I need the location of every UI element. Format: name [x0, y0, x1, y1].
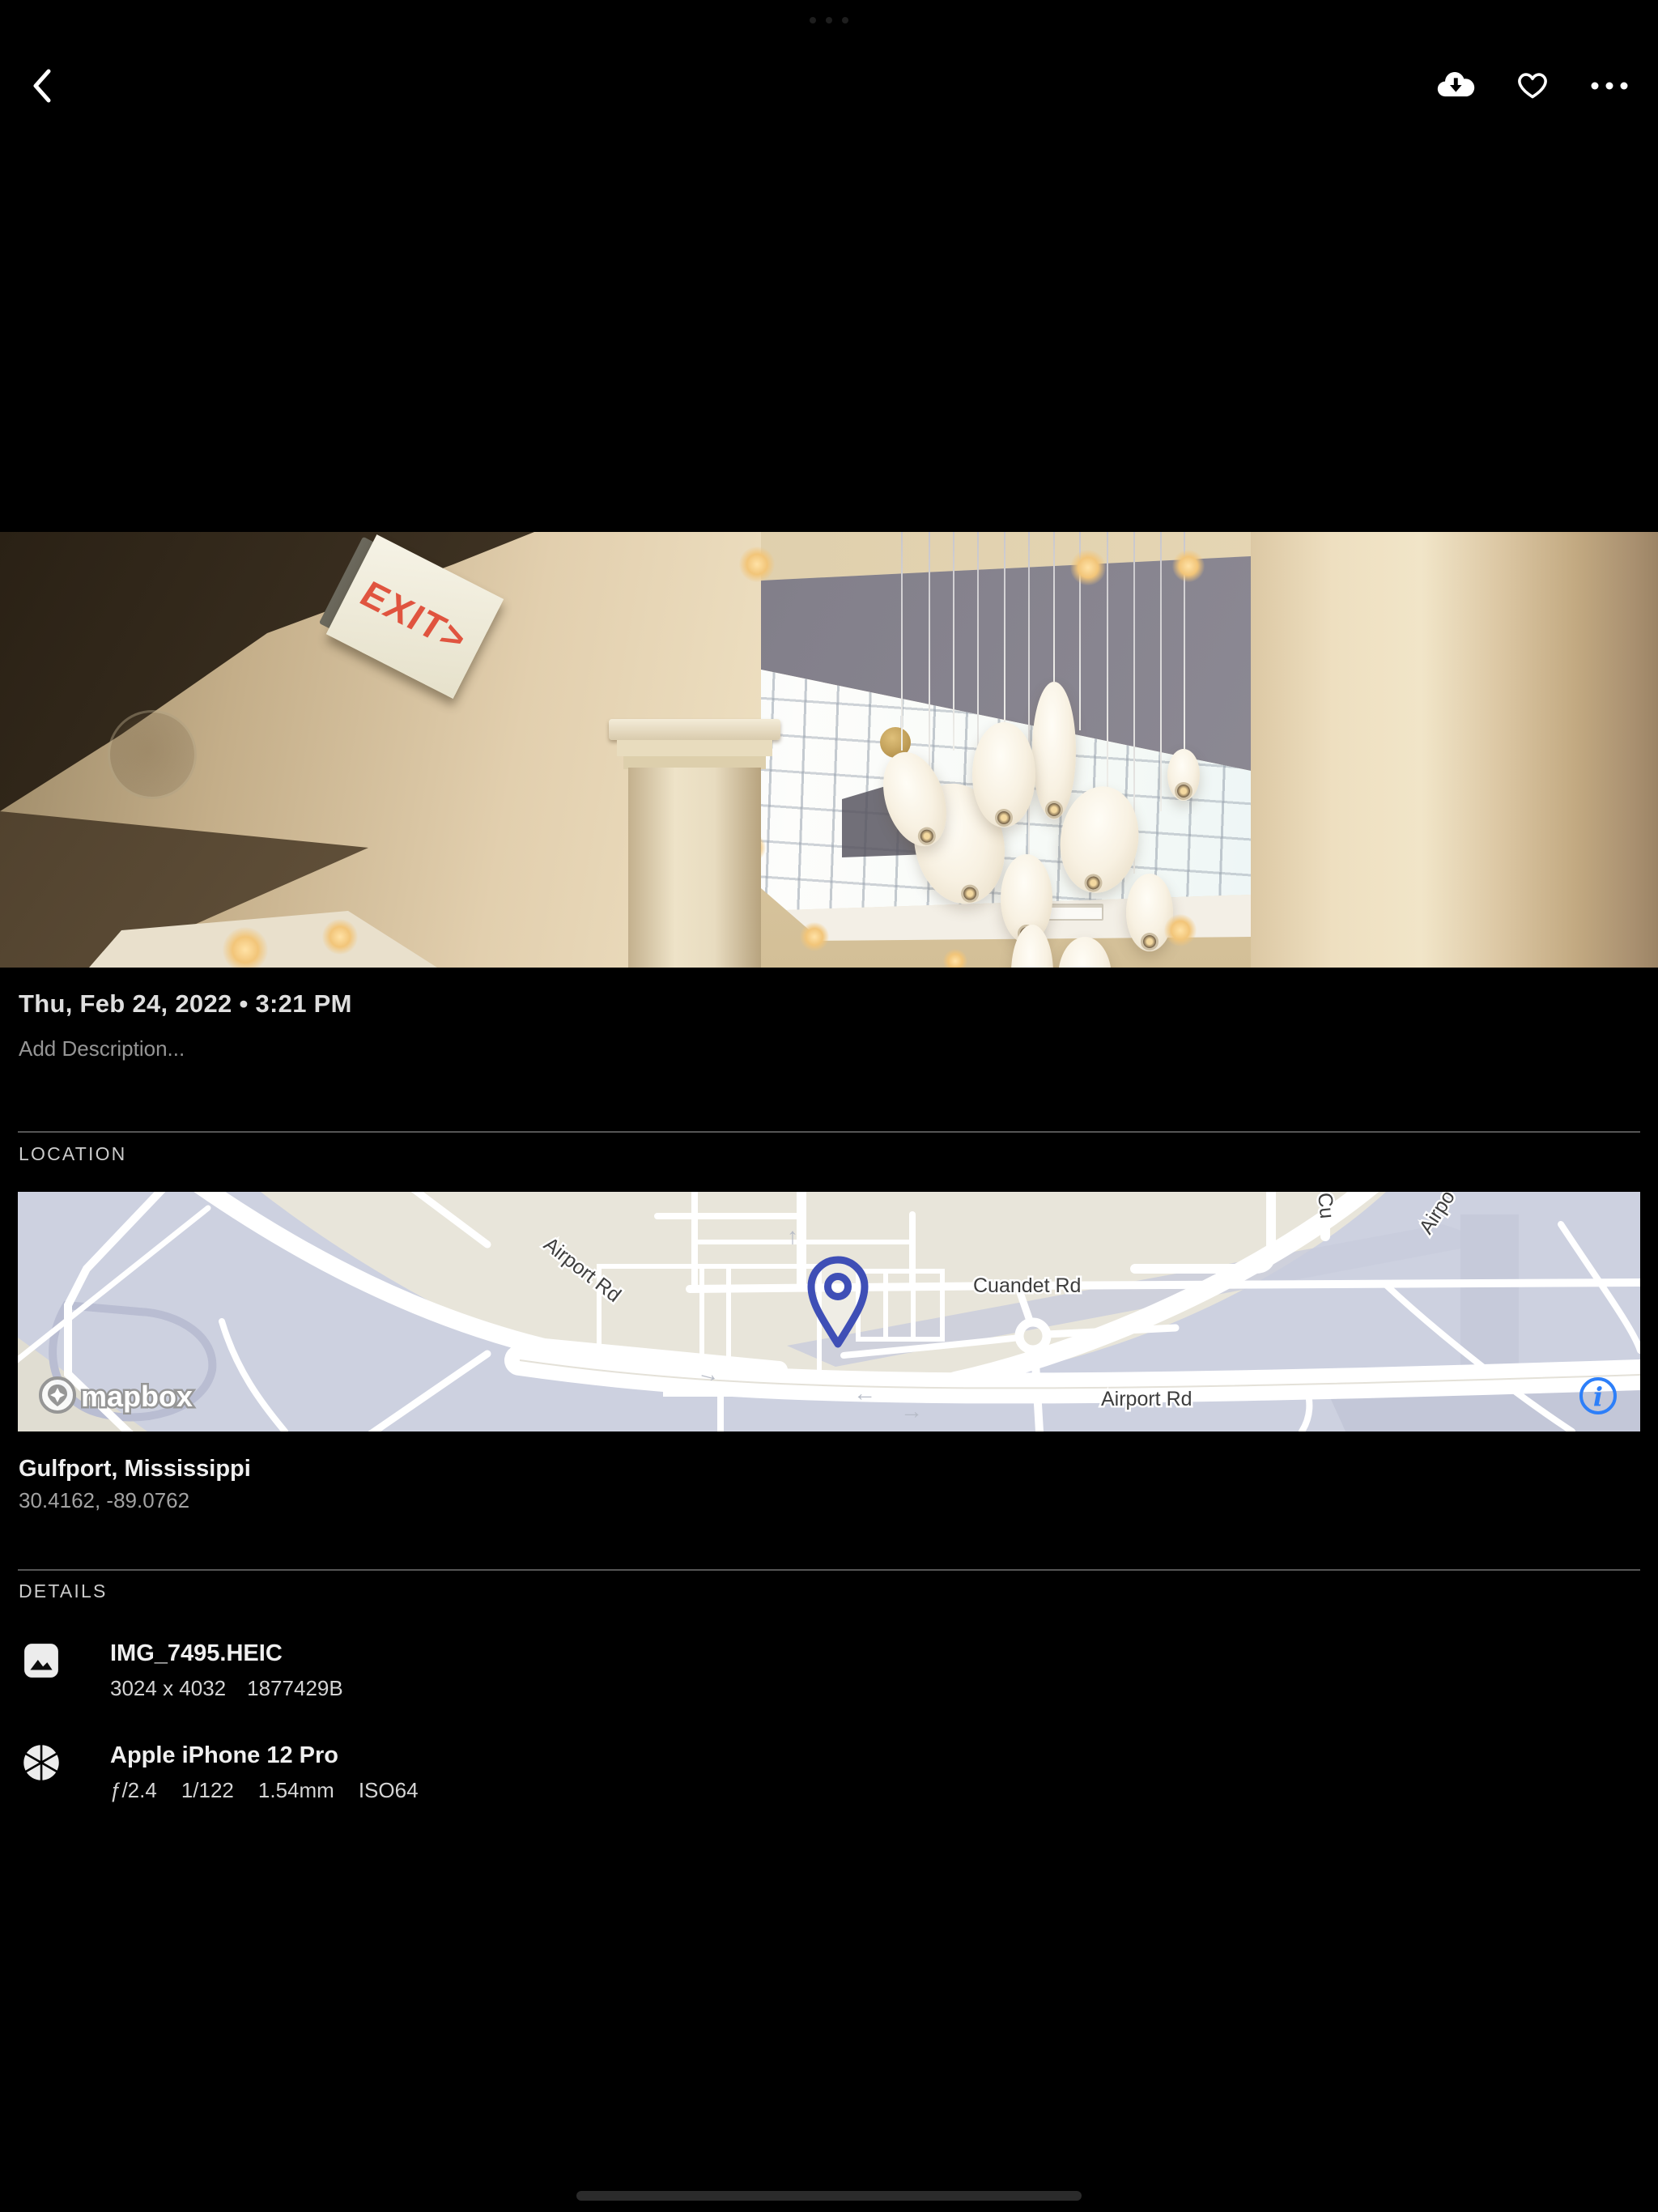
file-size: 1877429B	[247, 1676, 343, 1700]
download-button[interactable]	[1432, 65, 1479, 105]
lamp-wire	[953, 532, 954, 751]
air-vent	[1047, 904, 1103, 921]
camera-name: Apple iPhone 12 Pro	[110, 1742, 338, 1769]
divider	[18, 1131, 1640, 1133]
handle-dots-icon	[805, 11, 853, 29]
info-glyph: i	[1593, 1381, 1603, 1412]
downlight	[1172, 550, 1205, 582]
road-arrow: →	[900, 1398, 923, 1423]
downlight	[322, 919, 358, 955]
aperture-icon	[21, 1742, 62, 1783]
camera-aperture: ƒ/2.4	[110, 1778, 157, 1802]
downlight	[800, 922, 829, 951]
more-options-button[interactable]	[1587, 71, 1632, 100]
mapbox-logo[interactable]: mapbox	[40, 1378, 193, 1413]
cloud-download-icon	[1435, 70, 1477, 100]
street-label: Cu	[1313, 1192, 1338, 1219]
description-field[interactable]: Add Description...	[19, 1036, 185, 1061]
photo-viewer[interactable]: EXIT>	[0, 532, 1658, 968]
lamp-wire	[929, 532, 930, 775]
camera-focal: 1.54mm	[258, 1778, 334, 1802]
favorite-button[interactable]	[1511, 65, 1554, 105]
lamp-wire	[1053, 532, 1055, 682]
coordinates: 30.4162, -89.0762	[19, 1488, 189, 1513]
camera-iso: ISO64	[359, 1778, 419, 1802]
file-dimensions: 3024 x 4032	[110, 1676, 226, 1700]
mapbox-wordmark: mapbox	[81, 1380, 193, 1413]
downlight	[943, 949, 967, 968]
home-indicator[interactable]	[576, 2191, 1082, 2201]
lamp-wire	[1107, 532, 1108, 787]
column	[628, 768, 761, 968]
map-canvas: ← → ↑ → Airport Rd Cuandet Rd Airport Rd…	[18, 1192, 1640, 1431]
pendant-lamp	[1032, 682, 1076, 819]
place-name: Gulfport, Mississippi	[19, 1456, 251, 1482]
file-name: IMG_7495.HEIC	[110, 1640, 283, 1667]
street-label: Cuandet Rd	[973, 1274, 1081, 1297]
downlight	[1164, 914, 1197, 946]
pendant-lamp	[972, 722, 1035, 827]
lamp-wire	[1160, 532, 1162, 811]
location-map[interactable]: ← → ↑ → Airport Rd Cuandet Rd Airport Rd…	[18, 1192, 1640, 1431]
smoke-detector	[108, 710, 197, 799]
street-label: Airport Rd	[1101, 1388, 1192, 1410]
lamp-wire	[1004, 532, 1005, 722]
pendant-lamp	[1126, 874, 1173, 951]
road-arrow: ↑	[787, 1223, 798, 1249]
back-button[interactable]	[19, 63, 65, 108]
ellipsis-icon	[1590, 81, 1629, 91]
pendant-lamp	[1167, 749, 1200, 801]
file-meta: 3024 x 40321877429B	[110, 1676, 343, 1701]
lamp-wire	[901, 532, 903, 751]
heart-icon	[1516, 70, 1550, 100]
camera-info-row	[21, 1742, 62, 1787]
downlight	[1070, 550, 1106, 585]
column-capital	[609, 719, 780, 740]
right-wall	[1251, 532, 1658, 968]
details-header: DETAILS	[19, 1580, 108, 1602]
image-icon	[23, 1642, 60, 1679]
location-header: LOCATION	[19, 1143, 126, 1165]
camera-meta: ƒ/2.41/1221.54mmISO64	[110, 1778, 419, 1803]
column-capital	[617, 740, 772, 756]
road-arrow: ←	[853, 1380, 876, 1406]
file-info-row	[23, 1642, 60, 1683]
divider	[18, 1569, 1640, 1571]
downlight	[739, 547, 775, 582]
camera-shutter: 1/122	[181, 1778, 234, 1802]
photo-date: Thu, Feb 24, 2022 • 3:21 PM	[19, 989, 352, 1019]
chevron-left-icon	[26, 66, 58, 105]
multitask-indicator[interactable]	[805, 11, 853, 29]
downlight	[223, 927, 268, 968]
exit-sign-text: EXIT>	[353, 572, 478, 661]
photo-detail-screen: EXIT> Thu, Feb 24, 2022 • 3:21 PM Add De…	[0, 0, 1658, 2212]
